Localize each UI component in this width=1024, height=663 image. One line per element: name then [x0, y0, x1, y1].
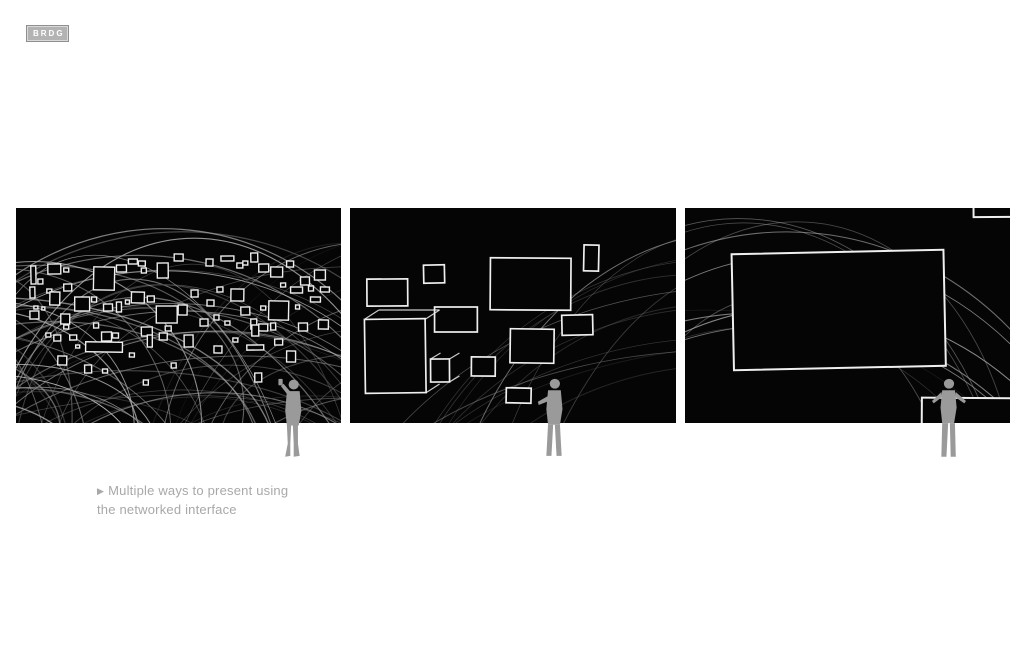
screen-rect: [247, 345, 264, 350]
screen-rect: [171, 363, 176, 368]
screen-rect: [231, 289, 244, 301]
slide-page: BRDG ▶Multiple ways to present using the…: [0, 0, 1024, 663]
depth-line: [450, 376, 460, 382]
screen-rect: [296, 305, 300, 309]
depth-line: [450, 353, 460, 359]
screen-rect: [261, 306, 266, 310]
screen-rect: [506, 388, 531, 404]
screen-rect: [86, 342, 123, 353]
screen-rect: [159, 333, 167, 340]
screen-rect: [921, 398, 1010, 423]
sketch-canvas: [685, 208, 1010, 423]
screen-rect: [143, 380, 148, 385]
screen-rect: [64, 268, 69, 272]
screen-rect: [30, 287, 35, 298]
screen-rect: [94, 323, 99, 328]
screen-rect: [48, 264, 61, 274]
screen-rect: [217, 287, 223, 292]
screen-rect: [64, 325, 69, 329]
screen-rect: [431, 359, 450, 382]
screen-rect: [38, 279, 43, 284]
screen-rect: [103, 369, 108, 373]
screen-rect: [287, 261, 294, 267]
screen-rect: [271, 267, 283, 277]
screen-rect: [298, 323, 307, 331]
screen-rect: [243, 261, 248, 265]
screen-rect: [92, 297, 97, 302]
screen-rect: [112, 333, 118, 338]
screen-rect: [271, 323, 276, 330]
screen-rect: [184, 335, 193, 347]
screen-rect: [207, 300, 214, 306]
screen-rect: [76, 345, 80, 348]
caption-line-1: ▶Multiple ways to present using: [97, 482, 288, 501]
depth-line: [431, 353, 441, 359]
screen-rect: [367, 279, 408, 306]
panel-medium-screens: [350, 208, 675, 423]
screen-rect: [147, 335, 152, 347]
flow-line: [16, 250, 341, 423]
screen-rect: [472, 357, 496, 376]
screen-rect: [125, 300, 129, 304]
screen-rect: [214, 346, 222, 353]
screen-rect: [75, 297, 90, 311]
screen-rect: [206, 259, 213, 266]
screen-rect: [259, 324, 268, 331]
screen-rect: [225, 321, 230, 325]
screen-rect: [85, 365, 92, 373]
screen-rect: [310, 297, 320, 302]
screen-rect: [34, 306, 38, 309]
screen-rect: [237, 263, 243, 268]
screen-rect: [300, 277, 309, 285]
screen-rect: [46, 333, 51, 337]
screen-rect: [30, 311, 39, 319]
screen-rect: [178, 305, 187, 315]
screen-rect: [435, 307, 478, 332]
screen-rect: [138, 261, 145, 266]
screen-rect: [129, 353, 134, 357]
caption: ▶Multiple ways to present using the netw…: [97, 482, 288, 518]
screen-rect: [214, 315, 219, 320]
sketch-canvas: [350, 208, 675, 423]
screen-rect: [973, 208, 1010, 217]
screen-rect: [70, 335, 77, 340]
screen-rect: [510, 329, 554, 364]
screen-rect: [731, 250, 945, 370]
screen-rect: [31, 266, 36, 284]
screen-rect: [424, 265, 445, 283]
screen-rect: [54, 335, 61, 341]
screen-rect: [102, 332, 112, 341]
screen-rect: [64, 284, 72, 291]
screen-rect: [165, 326, 171, 331]
screen-rect: [157, 263, 168, 278]
concept-panels-row: [16, 208, 1010, 423]
screen-rect: [259, 264, 269, 272]
screen-rect: [275, 339, 283, 345]
screen-rect: [318, 320, 328, 329]
screen-rect: [291, 287, 303, 293]
screen-rect: [255, 373, 262, 382]
screen-rect: [141, 268, 146, 273]
screen-rect: [103, 304, 112, 311]
caption-text-1: Multiple ways to present using: [108, 483, 288, 498]
screen-rect: [314, 270, 325, 280]
screen-rect: [156, 306, 177, 323]
screen-rect: [269, 301, 289, 320]
sketch-canvas: [16, 208, 341, 423]
caption-line-2: the networked interface: [97, 501, 288, 518]
screen-rect: [93, 267, 114, 290]
screen-rect: [584, 245, 599, 271]
screen-rect: [490, 258, 571, 311]
screen-rect: [251, 253, 258, 262]
panel-single-large-screen: [685, 208, 1010, 423]
screen-rect: [320, 287, 329, 292]
screen-rect: [562, 315, 593, 336]
screen-rect: [287, 351, 296, 362]
depth-line: [365, 310, 379, 319]
screen-rect: [308, 286, 313, 291]
brdg-logo: BRDG: [26, 25, 69, 42]
screen-rect: [221, 256, 234, 261]
panel-many-small-screens: [16, 208, 341, 423]
bullet-arrow-icon: ▶: [97, 483, 104, 500]
screen-rect: [116, 265, 126, 272]
screen-rect: [233, 338, 238, 342]
screen-rect: [42, 307, 45, 310]
screen-rect: [147, 296, 154, 302]
screen-rect: [191, 290, 198, 297]
screen-rect: [116, 302, 121, 312]
screen-rect: [241, 307, 250, 315]
screen-rect: [252, 325, 259, 336]
screen-rect: [281, 283, 286, 287]
screen-rect: [200, 319, 208, 326]
screen-rect: [50, 292, 60, 305]
screen-rect: [58, 356, 67, 365]
screen-rect: [131, 292, 144, 303]
screen-rect: [174, 254, 183, 261]
screen-rect: [61, 314, 70, 324]
screen-rect: [365, 319, 427, 394]
screen-rect: [128, 259, 137, 264]
